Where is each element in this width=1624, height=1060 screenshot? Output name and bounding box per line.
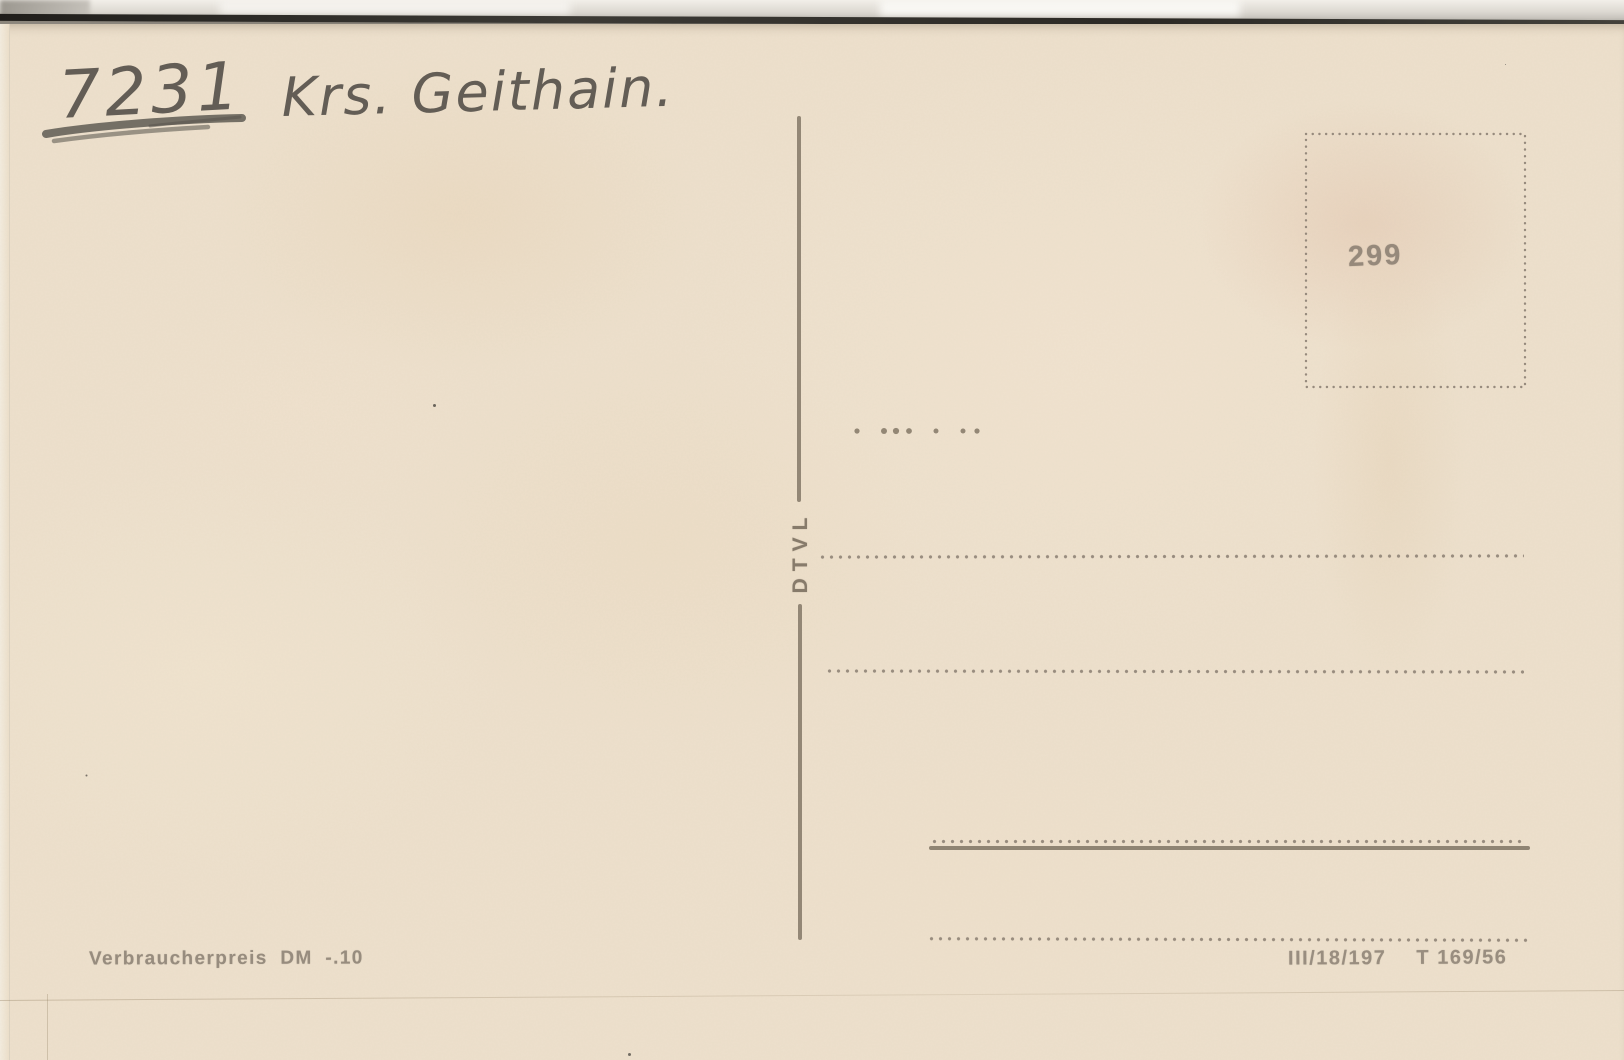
signature-dotted-line [932, 839, 1526, 844]
print-code: III/18/197 [1288, 947, 1387, 971]
divider-line-top [797, 116, 801, 502]
address-line-2 [827, 669, 1524, 675]
card-left-edge [0, 24, 10, 1060]
handwriting-annotation: 7231 Krs. Geithain. [30, 30, 810, 170]
divider-line-bottom [798, 604, 802, 940]
scanner-light-streak [220, 0, 570, 14]
postcard-scan: 7231 Krs. Geithain. 299 DTVL [0, 0, 1624, 1060]
stamp-box: 299 [1304, 132, 1527, 389]
scanner-light-streak [880, 0, 1240, 16]
price-note: Verbraucherpreis DM -.10 [89, 948, 364, 971]
message-dots [850, 424, 990, 436]
district-handwriting: Krs. Geithain. [281, 56, 676, 129]
divider-label: DTVL [789, 502, 815, 602]
dust-specks [433, 404, 436, 407]
series-code: T 169/56 [1416, 946, 1507, 969]
signature-solid-line [929, 846, 1530, 850]
stamp-number: 299 [1347, 239, 1403, 274]
print-codes: III/18/197 T 169/56 [1288, 946, 1507, 970]
stamp-box-border [1304, 132, 1527, 389]
crease-vertical [47, 994, 48, 1060]
